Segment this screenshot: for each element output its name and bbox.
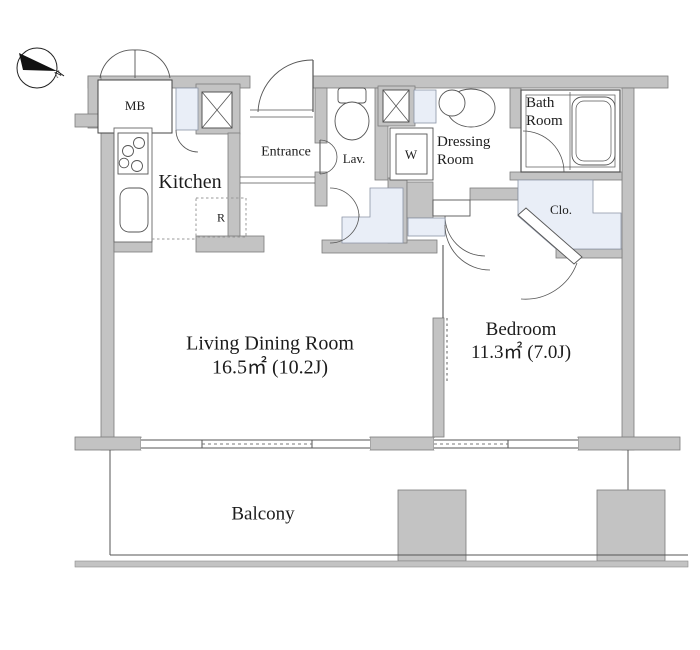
hall-closet: [342, 188, 403, 243]
bedroom-window: [434, 438, 578, 450]
kitchen-counter: [114, 128, 152, 242]
bathtub-icon: [572, 97, 615, 165]
shaft-shaded-box: [414, 90, 436, 123]
balcony-pillar: [398, 490, 466, 561]
dressing-room-label: Dressing Room: [437, 133, 490, 170]
stove-icon: [118, 133, 148, 174]
sink-icon: [120, 188, 148, 232]
living-room-label: Living Dining Room 16.5㎡ (10.2J): [186, 332, 354, 381]
wall-segment: [196, 236, 264, 252]
wall-segment: [315, 88, 327, 143]
meter-box: [98, 50, 172, 133]
washer-label: W: [405, 147, 417, 163]
kitchen-label: Kitchen: [158, 170, 221, 194]
wall-segment: [510, 172, 622, 180]
wall-segment: [578, 437, 680, 450]
entrance-label: Entrance: [261, 143, 311, 160]
entrance-door: [258, 60, 313, 112]
bath-room-label: Bath Room: [526, 94, 563, 131]
living-window: [141, 438, 370, 450]
wall-segment: [433, 318, 444, 437]
wall-segment: [313, 76, 668, 88]
balcony-pillar: [597, 490, 665, 561]
wall-segment: [315, 172, 327, 206]
balcony-label: Balcony: [231, 502, 294, 525]
balcony-railing: [75, 555, 688, 567]
wall-segment: [228, 133, 240, 240]
balcony-pillars: [398, 490, 665, 561]
wall-segment: [510, 88, 521, 128]
pipe-shaft-2-icon: [383, 90, 409, 122]
closet-label: Clo.: [550, 202, 572, 218]
wall-segment: [470, 188, 518, 200]
lavatory-label: Lav.: [343, 151, 366, 167]
balcony-outline: [110, 450, 628, 555]
wall-segment: [407, 182, 433, 218]
meter-box-label: MB: [125, 98, 145, 114]
wash-basin-icon: [439, 89, 495, 127]
wall-segment: [101, 114, 114, 450]
floor-plan-graphics: [0, 0, 700, 650]
wall-segment: [75, 437, 141, 450]
refrigerator-label: R: [217, 211, 225, 226]
toilet-icon: [335, 88, 369, 140]
bedroom-label: Bedroom 11.3㎡ (7.0J): [471, 318, 571, 364]
kitchen-door: [176, 88, 198, 152]
lavatory-door: [320, 140, 337, 174]
meter-box-doors-icon: [100, 50, 170, 78]
wall-segment: [622, 88, 634, 450]
wall-segment: [75, 114, 101, 127]
wall-segment: [370, 437, 434, 450]
pipe-shaft-icon: [202, 92, 232, 128]
floor-plan: MB Kitchen Entrance Lav. W R Dressing Ro…: [0, 0, 700, 650]
